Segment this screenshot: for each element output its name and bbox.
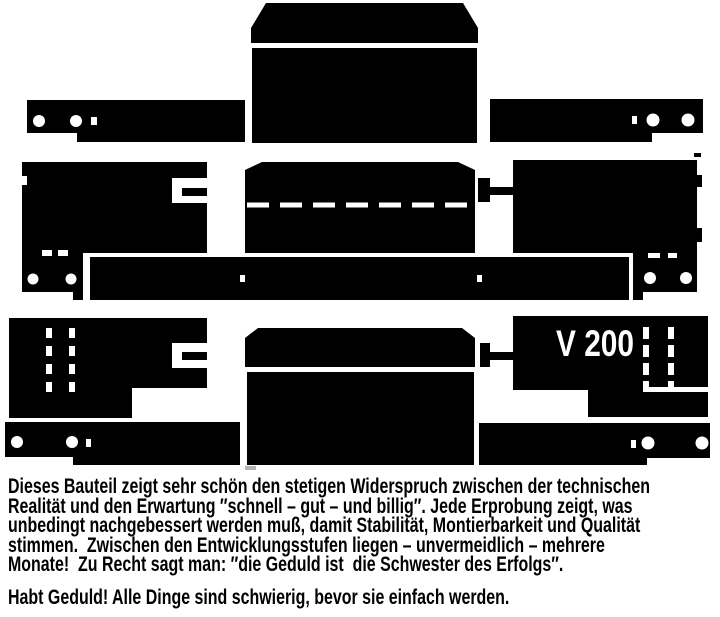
louvre-slot xyxy=(42,250,52,256)
coupling-pocket-tab xyxy=(182,352,207,360)
parts-figure: V 200 xyxy=(0,0,720,474)
rivet-hole xyxy=(70,115,82,127)
development-stage-3: V 200 xyxy=(5,316,710,470)
coupling-pocket-tab xyxy=(182,188,207,196)
right-side-part xyxy=(513,160,702,253)
rivet-hole xyxy=(696,437,709,450)
louvre-slot xyxy=(58,250,68,256)
left-frame-part xyxy=(27,100,245,142)
edge-notch xyxy=(643,387,708,392)
right-frame-part xyxy=(479,423,710,465)
edge-notch xyxy=(22,176,27,185)
slot-hole xyxy=(477,275,482,282)
caption-line: Habt Geduld! Alle Dinge sind schwierig, … xyxy=(8,588,549,608)
development-stage-1 xyxy=(27,3,703,143)
rivet-hole xyxy=(642,437,655,450)
cab-roof-part xyxy=(251,3,478,43)
rivet-hole xyxy=(28,274,39,285)
chassis-bar-part xyxy=(90,257,629,300)
right-frame-part xyxy=(490,99,703,142)
slot-hole xyxy=(632,116,637,124)
development-stage-2 xyxy=(22,153,702,300)
v200-lettering: V 200 xyxy=(556,323,634,364)
rivet-hole xyxy=(33,115,45,127)
caption: Dieses Bauteil zeigt sehr schön den stet… xyxy=(8,477,720,607)
cab-body-part xyxy=(252,48,477,143)
scan-artifact xyxy=(245,466,256,470)
slot-hole xyxy=(91,117,97,125)
rivet-hole xyxy=(644,272,656,284)
louvre-slot xyxy=(668,253,677,258)
scan-speck xyxy=(694,153,701,157)
cab-roof-part xyxy=(245,328,475,367)
rivet-hole xyxy=(66,436,78,448)
rivet-hole xyxy=(66,274,77,285)
left-frame-part xyxy=(5,422,240,465)
cab-body-part xyxy=(247,372,474,465)
rivet-hole xyxy=(680,272,692,284)
coupling-hook xyxy=(478,178,513,202)
rivet-hole xyxy=(11,436,23,448)
louvre-slot xyxy=(648,253,660,258)
slot-hole xyxy=(240,275,245,282)
slot-hole xyxy=(631,440,636,448)
slot-hole xyxy=(86,439,91,447)
coupling-hook xyxy=(480,343,513,367)
caption-line: Monate! Zu Recht sagt man: ″die Geduld i… xyxy=(8,555,549,575)
rivet-hole xyxy=(647,114,660,127)
rivet-hole xyxy=(682,114,695,127)
